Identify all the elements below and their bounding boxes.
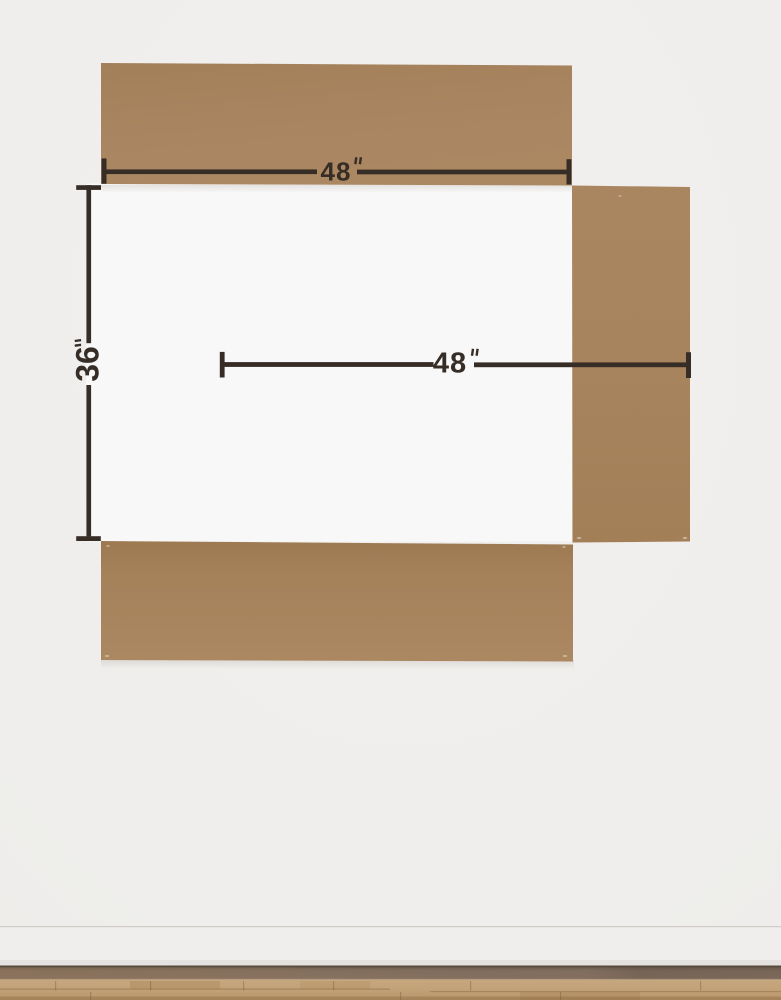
svg-text:36: 36 bbox=[70, 346, 106, 382]
svg-text:48: 48 bbox=[321, 157, 352, 187]
svg-text:48: 48 bbox=[433, 348, 467, 380]
